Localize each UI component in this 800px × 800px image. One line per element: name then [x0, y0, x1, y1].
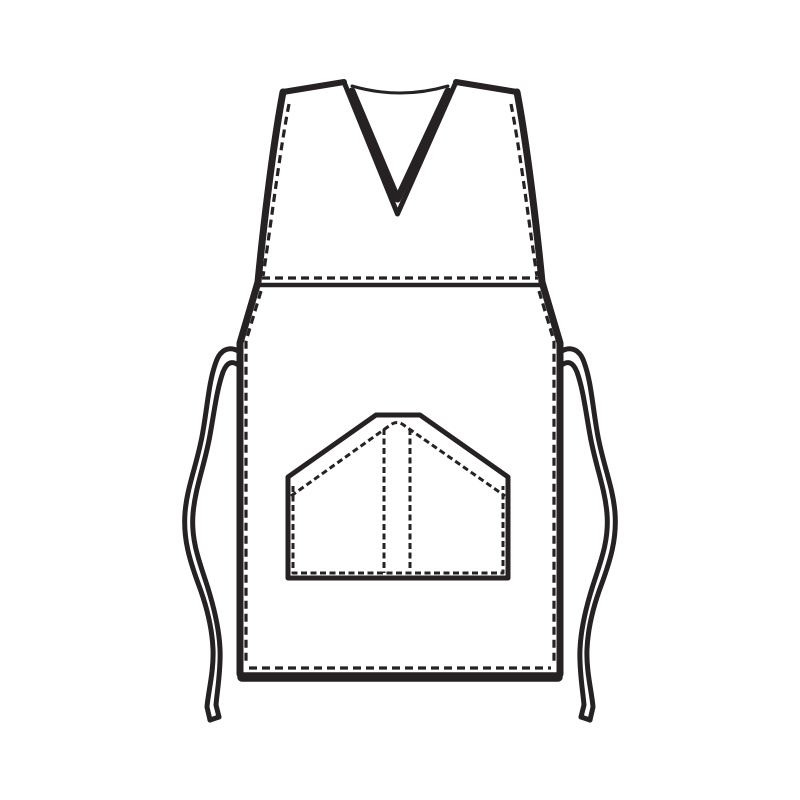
tie-right-tip	[581, 717, 590, 720]
tie-right-inner-edge	[560, 363, 607, 717]
tie-left-inner-edge	[193, 363, 240, 717]
waist-tie-left	[185, 349, 240, 720]
apron-body	[240, 82, 560, 676]
tie-left-tip	[210, 717, 219, 720]
apron-line-drawing	[0, 0, 800, 800]
apron-illustration-canvas	[0, 0, 800, 800]
waist-tie-right	[560, 349, 615, 720]
back-neck-curve	[352, 86, 448, 93]
